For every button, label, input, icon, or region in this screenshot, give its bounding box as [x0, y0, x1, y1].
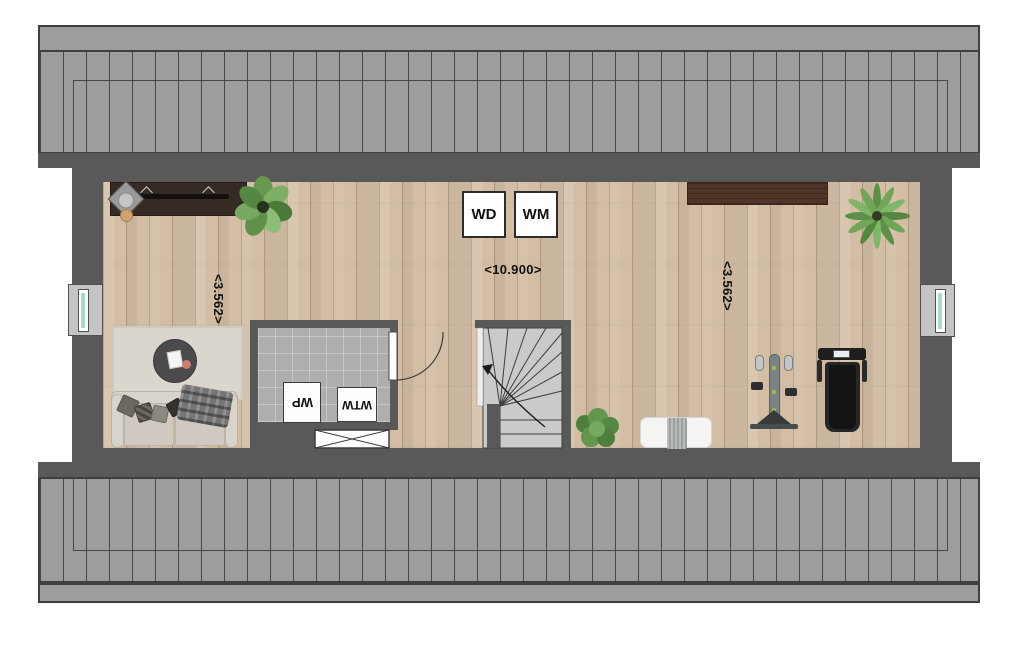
- winder-staircase-icon: [475, 320, 571, 448]
- bush-plant-icon: [576, 408, 619, 447]
- fiddle-leaf-plant-icon: [233, 176, 295, 239]
- palm-plant-icon: [845, 183, 910, 249]
- void-hatch-icon: [315, 430, 389, 448]
- plan-overlay: [0, 0, 1024, 650]
- floor-plan: WD WM <10.900> <3.562> <3.562> WP WTW: [0, 0, 1024, 650]
- interior-door-icon: [389, 332, 443, 380]
